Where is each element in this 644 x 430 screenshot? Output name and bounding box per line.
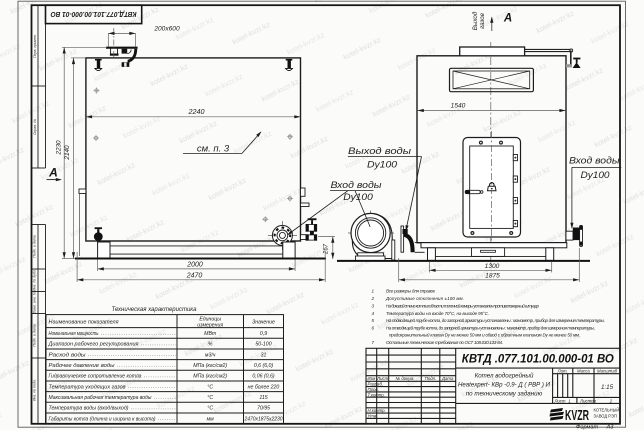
svg-text:На боковой стене котла в облас: На боковой стене котла в области топочно… bbox=[386, 302, 539, 308]
svg-text:Dy100: Dy100 bbox=[343, 191, 373, 202]
svg-text:по техническому заданию: по техническому заданию bbox=[466, 391, 543, 398]
svg-text:Инв. № дубл.: Инв. № дубл. bbox=[33, 269, 37, 291]
svg-text:%: % bbox=[208, 342, 213, 348]
svg-text:А3: А3 bbox=[606, 425, 615, 430]
svg-text:КОТЕЛЬНЫЙ: КОТЕЛЬНЫЙ bbox=[594, 408, 620, 413]
svg-text:Габариты котла (длинна и ширин: Габариты котла (длинна и ширина к высота… bbox=[49, 416, 156, 422]
svg-text:Формат: Формат bbox=[576, 425, 599, 430]
svg-text:Все размеры для справок: Все размеры для справок bbox=[386, 289, 436, 294]
svg-text:Heatexpert- КВр -0,9- Д ( РВР: Heatexpert- КВр -0,9- Д ( РВР ) И bbox=[458, 382, 551, 389]
svg-text:Котел водогрейный: Котел водогрейный bbox=[475, 373, 534, 380]
svg-text:КВТД .077.101.00.000-01 ВО: КВТД .077.101.00.000-01 ВО bbox=[462, 353, 614, 365]
svg-text:200х600: 200х600 bbox=[153, 26, 180, 33]
svg-text:2: 2 bbox=[371, 296, 375, 301]
svg-text:Наименование показателя: Наименование показателя bbox=[49, 320, 119, 326]
svg-text:Т.контр.: Т.контр. bbox=[368, 392, 385, 397]
svg-text:Подп. и дата: Подп. и дата bbox=[33, 235, 37, 258]
svg-text:2230: 2230 bbox=[56, 140, 63, 156]
svg-text:2140: 2140 bbox=[64, 145, 71, 161]
svg-text:№ докум.: № докум. bbox=[396, 376, 415, 381]
svg-text:Dy100: Dy100 bbox=[581, 169, 611, 180]
svg-text:KVZR: KVZR bbox=[565, 408, 589, 424]
svg-text:Масса: Масса bbox=[577, 369, 590, 374]
svg-text:Лист: Лист bbox=[553, 398, 565, 403]
svg-text:м3/ч: м3/ч bbox=[205, 352, 216, 358]
svg-text:1875: 1875 bbox=[485, 272, 500, 279]
svg-text:70/95: 70/95 bbox=[257, 406, 270, 412]
svg-text:Выход: Выход bbox=[472, 11, 479, 30]
svg-text:измерения: измерения bbox=[197, 323, 223, 329]
svg-text:МПа (кгс/см2): МПа (кгс/см2) bbox=[193, 363, 227, 369]
svg-text:31: 31 bbox=[261, 352, 267, 358]
svg-text:предохранительный клапан Dу н: предохранительный клапан Dу не менее 50 … bbox=[389, 332, 580, 338]
svg-text:Перв. примен.: Перв. примен. bbox=[33, 34, 37, 58]
svg-text:Выход воды: Выход воды bbox=[348, 145, 411, 156]
svg-text:Рабочее давление воды: Рабочее давление воды bbox=[49, 363, 115, 369]
svg-text:А: А bbox=[503, 12, 512, 24]
svg-text:Техническая характеристика: Техническая характеристика bbox=[112, 307, 198, 313]
svg-text:Взам. инв. №: Взам. инв. № bbox=[33, 291, 37, 313]
svg-text:Лит.: Лит. bbox=[557, 369, 568, 374]
svg-text:Диапазон рабочего регулировани: Диапазон рабочего регулирования bbox=[47, 342, 138, 348]
svg-text:Значение: Значение bbox=[252, 320, 275, 326]
svg-text:Подп.: Подп. bbox=[425, 376, 436, 381]
svg-text:Справ. №: Справ. № bbox=[33, 119, 37, 135]
svg-text:На подводящей трубе котла, до: На подводящей трубе котла, до запорной а… bbox=[386, 317, 605, 323]
svg-text:Масштаб: Масштаб bbox=[597, 369, 618, 374]
svg-text:А: А bbox=[48, 166, 58, 180]
svg-text:см. п. 3: см. п. 3 bbox=[197, 144, 230, 155]
svg-text:МВт: МВт bbox=[204, 331, 217, 337]
svg-text:Гидравлическое сопротивление к: Гидравлическое сопротивление котла bbox=[49, 374, 142, 380]
svg-text:0,06 (0,6): 0,06 (0,6) bbox=[252, 374, 274, 380]
svg-text:ЗАВОД РЭП: ЗАВОД РЭП bbox=[594, 414, 617, 419]
svg-text:2470х1875х2230: 2470х1875х2230 bbox=[244, 416, 283, 422]
svg-text:0,6 (6,0): 0,6 (6,0) bbox=[254, 363, 274, 369]
svg-text:Температура воды на входе 70°: Температура воды на входе 70°С, на выход… bbox=[386, 311, 489, 316]
svg-text:Вход воды: Вход воды bbox=[331, 179, 382, 190]
svg-text:0,9: 0,9 bbox=[260, 331, 267, 337]
svg-text:1300: 1300 bbox=[485, 263, 500, 270]
svg-text:Допустимые отклонения ±100 мм: Допустимые отклонения ±100 мм. bbox=[385, 296, 464, 301]
svg-text:Вход воды: Вход воды bbox=[569, 154, 620, 165]
svg-text:Температура воды (вход/выход): Температура воды (вход/выход) bbox=[49, 406, 129, 412]
svg-text:КВТД.077.101.00.000-01 ВО: КВТД.077.101.00.000-01 ВО bbox=[50, 10, 137, 17]
svg-text:Dy100: Dy100 bbox=[367, 159, 398, 170]
svg-text:МПа (кгс/см2): МПа (кгс/см2) bbox=[193, 374, 227, 380]
svg-text:Листов: Листов bbox=[579, 398, 596, 403]
svg-text:°С: °С bbox=[207, 406, 213, 412]
svg-text:2470: 2470 bbox=[186, 272, 203, 279]
svg-text:115: 115 bbox=[259, 395, 267, 401]
svg-text:Инв. № подл.: Инв. № подл. bbox=[33, 379, 37, 401]
svg-text:1540: 1540 bbox=[451, 103, 466, 110]
svg-text:2000: 2000 bbox=[186, 262, 203, 269]
svg-text:°С: °С bbox=[207, 384, 213, 390]
svg-text:Остальные технические требован: Остальные технические требования по ОСТ … bbox=[386, 340, 503, 345]
svg-text:°С: °С bbox=[207, 395, 213, 401]
svg-text:Н.контр.: Н.контр. bbox=[368, 408, 386, 413]
svg-text:Расход воды: Расход воды bbox=[49, 352, 86, 358]
svg-text:Максимальная рабочая температу: Максимальная рабочая температура воды bbox=[49, 395, 152, 401]
svg-text:не более 220: не более 220 bbox=[248, 384, 280, 390]
svg-text:мм: мм bbox=[207, 416, 215, 422]
svg-text:Пров.: Пров. bbox=[368, 387, 379, 392]
svg-text:газов: газов bbox=[479, 12, 486, 29]
svg-text:Изм: Изм bbox=[367, 376, 375, 381]
svg-text:Подп. и дата: Подп. и дата bbox=[33, 324, 37, 347]
svg-text:Температура уходящих газов: Температура уходящих газов bbox=[49, 384, 126, 390]
svg-text:Лист: Лист bbox=[376, 376, 388, 381]
svg-text:267: 267 bbox=[324, 243, 330, 255]
svg-text:Разраб.: Разраб. bbox=[368, 382, 384, 387]
svg-text:Утв.: Утв. bbox=[368, 414, 378, 419]
svg-text:1:15: 1:15 bbox=[601, 384, 614, 391]
svg-text:Дата: Дата bbox=[441, 376, 454, 381]
svg-text:2240: 2240 bbox=[188, 107, 205, 116]
svg-text:На отводящей трубе котла, до з: На отводящей трубе котла, до запорной ар… bbox=[386, 325, 595, 331]
svg-text:50-100: 50-100 bbox=[255, 342, 271, 348]
svg-text:Номинальная мощность: Номинальная мощность bbox=[49, 331, 99, 337]
